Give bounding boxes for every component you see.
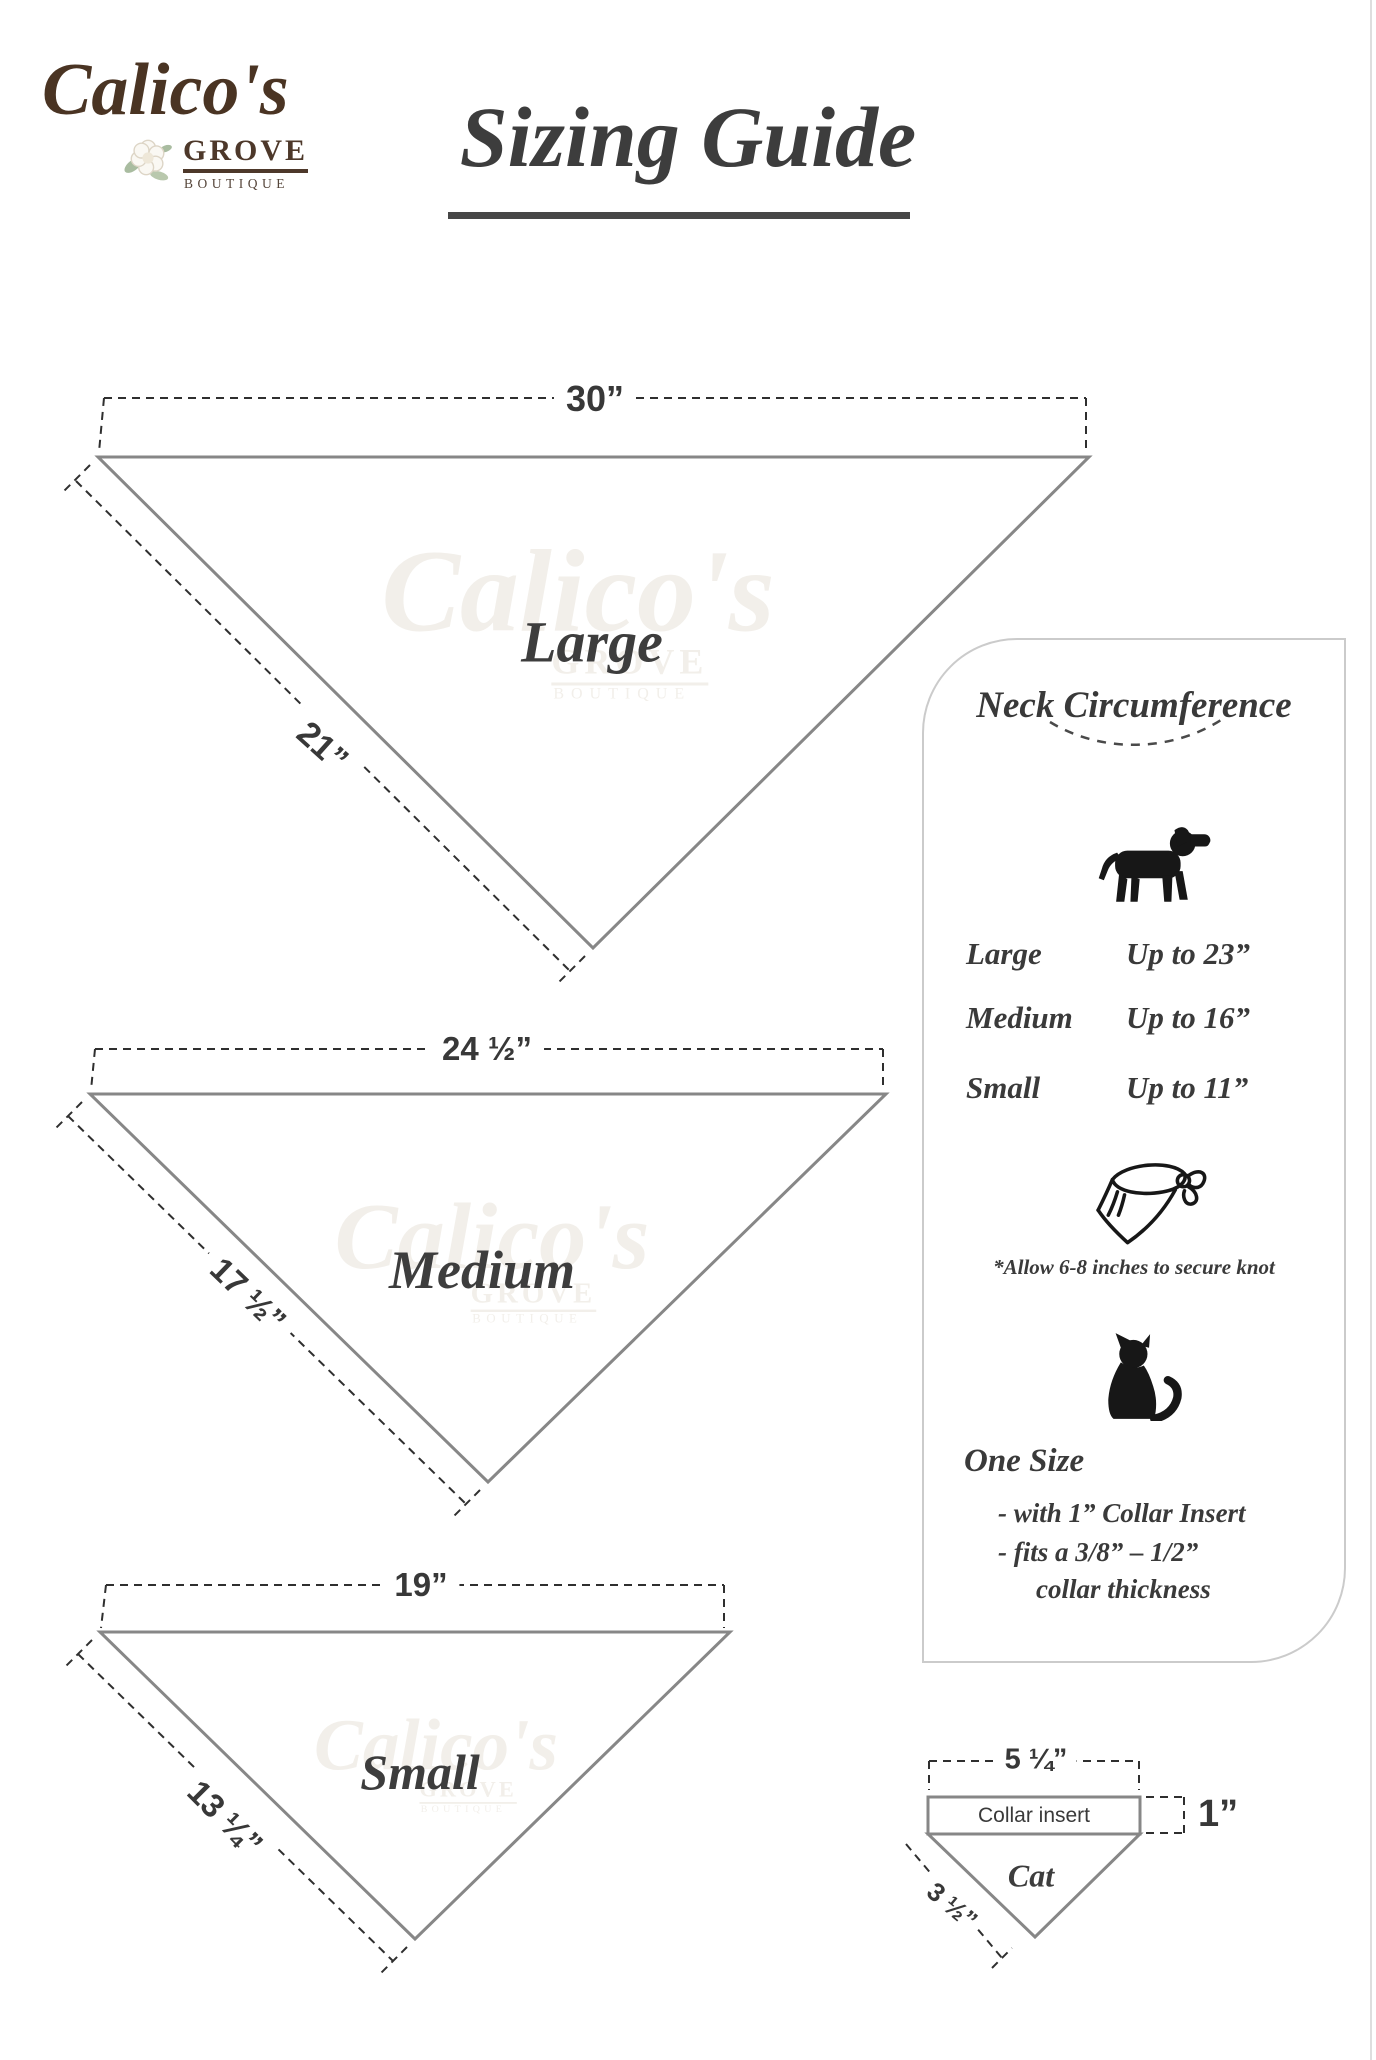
small-size-name: Small — [360, 1743, 479, 1801]
one-size-title: One Size — [964, 1443, 1084, 1480]
cat-icon — [1102, 1333, 1194, 1421]
size-row-value: Up to 16” — [1126, 1000, 1250, 1036]
brand-logo: Calico's GROVE BOUTIQUE — [42, 50, 332, 220]
brand-boutique: BOUTIQUE — [184, 176, 289, 192]
size-row-value: Up to 23” — [1126, 936, 1250, 972]
neck-circumference-panel: Neck Circumference Large Up to 23” Mediu… — [922, 638, 1346, 1663]
brand-name: Calico's — [42, 50, 289, 131]
dashed-curve-underline — [1042, 712, 1232, 762]
size-row-label: Large — [966, 936, 1126, 972]
medium-top-width-label: 24 ½” — [430, 1029, 544, 1069]
one-size-line-2: - fits a 3/8” – 1/2” — [998, 1537, 1198, 1568]
large-top-width-label: 30” — [554, 377, 636, 421]
medium-size-name: Medium — [389, 1239, 575, 1301]
bandana-icon — [1090, 1153, 1220, 1251]
cat-insert-height-label: 1” — [1198, 1793, 1238, 1836]
size-row-value: Up to 11” — [1126, 1070, 1248, 1106]
size-row-large: Large Up to 23” — [966, 936, 1328, 972]
title-underline — [448, 212, 910, 219]
dog-icon — [1096, 824, 1212, 910]
large-size-name: Large — [521, 609, 663, 676]
collar-insert-label: Collar insert — [928, 1797, 1140, 1834]
sizing-guide-page: Calico's GROVE BOUTIQUE Sizing Guide Cal… — [0, 0, 1376, 2060]
brand-grove: GROVE — [183, 134, 308, 173]
one-size-line-3: collar thickness — [1036, 1574, 1211, 1605]
page-title: Sizing Guide — [378, 86, 998, 189]
page-right-edge — [1370, 0, 1372, 2060]
size-row-medium: Medium Up to 16” — [966, 1000, 1328, 1036]
size-row-label: Medium — [966, 1000, 1126, 1036]
size-row-small: Small Up to 11” — [966, 1070, 1328, 1106]
cat-size-name: Cat — [1008, 1858, 1054, 1895]
cat-top-width-label: 5 ¼” — [996, 1743, 1077, 1778]
knot-note: *Allow 6-8 inches to secure knot — [924, 1255, 1344, 1280]
magnolia-flower-icon — [122, 132, 174, 184]
small-top-width-label: 19” — [382, 1565, 459, 1605]
size-row-label: Small — [966, 1070, 1126, 1106]
one-size-line-1: - with 1” Collar Insert — [998, 1498, 1246, 1529]
